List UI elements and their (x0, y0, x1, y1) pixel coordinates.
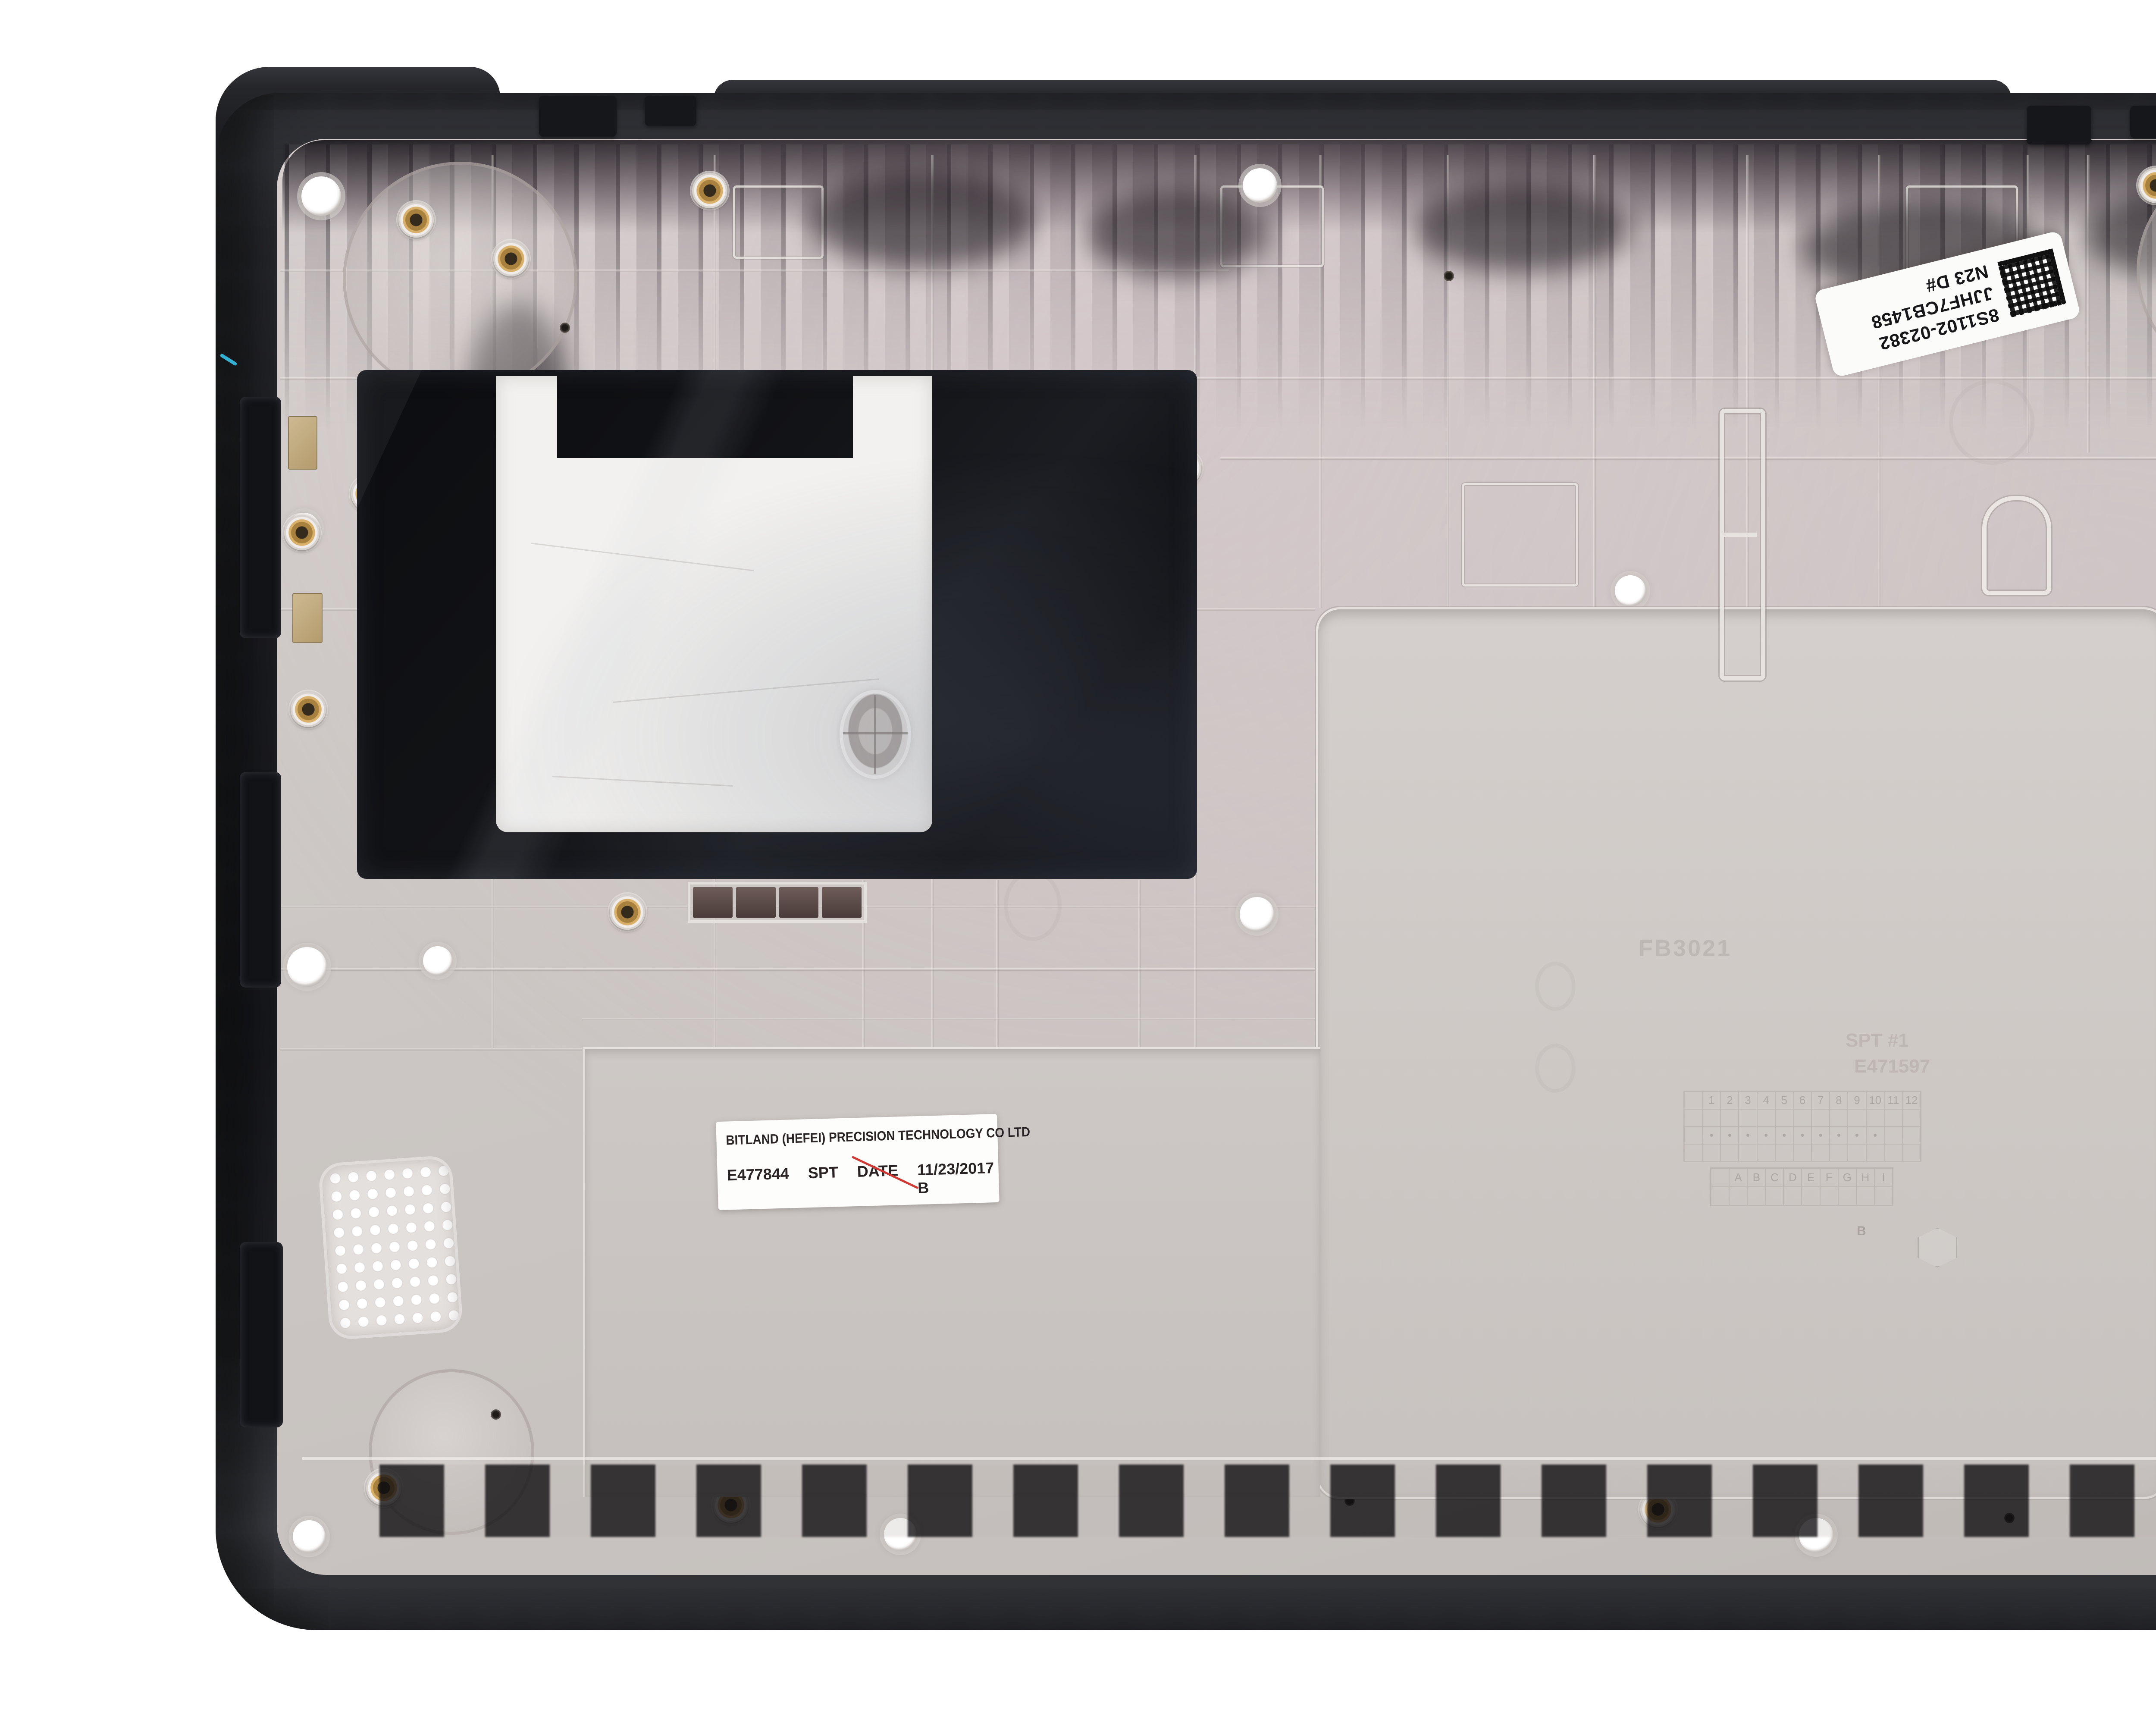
speaker-grille-left (321, 1158, 461, 1337)
mold-grid-cell (1856, 1187, 1874, 1205)
mold-grid-cell (1902, 1126, 1921, 1144)
screw-boss-brass-insert (692, 173, 727, 208)
mold-grid-cell (1720, 1109, 1739, 1127)
mold-grid-cell: A (1729, 1168, 1747, 1187)
alignment-pin-hole (1444, 271, 1454, 281)
mold-grid-cell (1684, 1091, 1702, 1109)
barcode-label-text: 8S1102-02382 JJHF7CB1458 N23 D# (1864, 261, 2001, 354)
mold-grid-cell: 1 (1702, 1091, 1720, 1109)
main-recessed-bay (1316, 607, 2156, 1499)
mold-grid-cell: • (1775, 1126, 1793, 1144)
tall-slot-divider (1720, 533, 1757, 537)
latch-hook (2130, 106, 2156, 138)
mold-grid-cell (1775, 1109, 1793, 1127)
manufacturer-name: BITLAND (HEFEI) PRECISION TECHNOLOGY CO … (726, 1126, 963, 1148)
mold-grid-cell: 7 (1811, 1091, 1830, 1109)
mold-grid-cell (1711, 1187, 1729, 1205)
rib-horizontal (280, 1048, 582, 1051)
soft-shadow (811, 172, 1035, 267)
hinge-dome-boss (343, 162, 577, 396)
side-port-cutout-left (240, 1242, 283, 1427)
mold-grid-cell: F (1820, 1168, 1838, 1187)
mold-grid-cell: 8 (1830, 1091, 1848, 1109)
mold-grid-cell (1757, 1109, 1775, 1127)
screw-boss-brass-insert (493, 241, 529, 276)
screw-hole (1243, 168, 1277, 203)
mold-grid-cell: • (1739, 1126, 1757, 1144)
embossed-text: SPT #1 (1846, 1030, 1909, 1051)
soft-shadow (1087, 190, 1268, 276)
screw-hole (287, 947, 327, 987)
mold-grid-cell: 5 (1775, 1091, 1793, 1109)
product-photo-canvas: FB3021 SPT #1 E471597 123456789101112•••… (0, 0, 2156, 1725)
mold-grid-cell: G (1838, 1168, 1856, 1187)
rib-vertical (2087, 155, 2090, 453)
molded-pocket-frame (1462, 483, 1578, 586)
vent-cell (693, 887, 733, 918)
latch-hook (539, 96, 617, 137)
datamatrix-icon (1997, 248, 2066, 317)
mold-grid-cell: 10 (1866, 1091, 1884, 1109)
side-port-cutout-left (240, 397, 281, 638)
gold-tape-pad (292, 593, 323, 643)
mold-grid-cell (1711, 1168, 1729, 1187)
mold-grid-cell (1884, 1126, 1902, 1144)
rib-horizontal (582, 1018, 1315, 1020)
mold-grid-cell (1739, 1144, 1757, 1162)
latch-hook (2027, 106, 2091, 144)
embossed-ring (1949, 379, 2034, 465)
mold-grid-cell: • (1757, 1126, 1775, 1144)
mold-grid-cell (1702, 1109, 1720, 1127)
label-date-key: DATE (857, 1161, 899, 1199)
mold-grid-cell (1902, 1144, 1921, 1162)
embossed-text: FB3021 (1639, 935, 1732, 962)
keyhole-boss-frame (1982, 496, 2051, 595)
mold-grid-cell (1884, 1144, 1902, 1162)
latch-hook (645, 96, 696, 126)
bottom-rib-pockets (379, 1465, 2156, 1537)
vent-cell (736, 887, 776, 918)
mold-grid-cell: C (1765, 1168, 1783, 1187)
screw-boss-brass-insert (291, 692, 326, 727)
alignment-pin-hole (560, 323, 570, 333)
mold-grid-cell: D (1783, 1168, 1802, 1187)
label-part-number: E477844 (727, 1164, 790, 1202)
mold-grid-cell (1757, 1144, 1775, 1162)
vent-slot-row (688, 882, 867, 923)
manufacturer-label: BITLAND (HEFEI) PRECISION TECHNOLOGY CO … (716, 1114, 999, 1210)
mold-grid-cell (1802, 1187, 1820, 1205)
screw-hole (301, 176, 341, 216)
mold-grid-cell: • (1793, 1126, 1811, 1144)
mold-grid-cell: E (1802, 1168, 1820, 1187)
mold-grid-cell: 2 (1720, 1091, 1739, 1109)
mold-grid-cell (1866, 1109, 1884, 1127)
mold-grid-cell (1811, 1144, 1830, 1162)
vent-cell (822, 887, 862, 918)
screw-boss-brass-insert (284, 515, 320, 550)
mold-grid-cell (1793, 1109, 1811, 1127)
mold-number-grid: 123456789101112•••••••••• (1683, 1091, 1921, 1162)
mold-grid-cell: • (1848, 1126, 1866, 1144)
mold-grid-cell: 12 (1902, 1091, 1921, 1109)
mold-grid-cell: B (1747, 1168, 1765, 1187)
mold-grid-cell (1811, 1109, 1830, 1127)
mold-grid-cell (1902, 1109, 1921, 1127)
soft-shadow (1414, 185, 1630, 272)
label-date-value: 11/23/2017 B (917, 1159, 994, 1197)
side-port-cutout-left (240, 772, 281, 988)
mold-grid-cell: H (1856, 1168, 1874, 1187)
mold-grid-cell: 9 (1848, 1091, 1866, 1109)
mold-letter-grid: ABCDEFGHI (1710, 1167, 1893, 1206)
mold-grid-cell (1848, 1109, 1866, 1127)
screw-hole (293, 1520, 326, 1553)
embossed-oval-stamp (1535, 962, 1576, 1011)
embossed-text: E471597 (1854, 1056, 1930, 1077)
mold-grid-cell (1720, 1144, 1739, 1162)
mold-grid-cell (1729, 1187, 1747, 1205)
bottom-rib-sill (302, 1457, 2156, 1460)
embossed-ring (1004, 870, 1062, 941)
manufacturer-label-row: E477844 SPT DATE 11/23/2017 B (727, 1159, 990, 1202)
mold-grid-cell (1702, 1144, 1720, 1162)
mold-grid-cell: I (1874, 1168, 1893, 1187)
lower-flat-bay (583, 1047, 1320, 1497)
gold-tape-pad (288, 416, 317, 470)
vent-cell (779, 887, 819, 918)
mold-grid-cell: • (1702, 1126, 1720, 1144)
mold-wheel-letter: B (1857, 1224, 1866, 1239)
embossed-oval-stamp (1535, 1044, 1576, 1093)
alignment-pin-hole (491, 1409, 501, 1420)
mold-grid-cell: • (1830, 1126, 1848, 1144)
mold-grid-cell (1747, 1187, 1765, 1205)
mold-grid-cell (1820, 1187, 1838, 1205)
screw-hole (423, 946, 452, 975)
mold-grid-cell (1874, 1187, 1893, 1205)
mold-grid-cell (1684, 1109, 1702, 1127)
mold-grid-cell (1884, 1109, 1902, 1127)
mold-grid-cell (1830, 1144, 1848, 1162)
mold-grid-cell (1739, 1109, 1757, 1127)
mold-grid-cell: 4 (1757, 1091, 1775, 1109)
screw-boss-brass-insert (610, 894, 645, 930)
mold-grid-cell: • (1720, 1126, 1739, 1144)
mold-grid-cell: 11 (1884, 1091, 1902, 1109)
mold-grid-cell: 3 (1739, 1091, 1757, 1109)
mold-grid-cell (1775, 1144, 1793, 1162)
mold-grid-cell (1684, 1126, 1702, 1144)
screw-hole (1615, 575, 1646, 606)
mold-grid-cell (1684, 1144, 1702, 1162)
mold-grid-cell: • (1811, 1126, 1830, 1144)
mold-grid-cell (1838, 1187, 1856, 1205)
screw-boss-brass-insert (398, 202, 434, 238)
mylar-gloss (357, 370, 1197, 879)
mold-grid-cell: • (1866, 1126, 1884, 1144)
screw-hole (1240, 897, 1274, 931)
molded-pocket-frame (733, 185, 824, 259)
mold-grid-cell (1783, 1187, 1802, 1205)
mold-grid-cell (1848, 1144, 1866, 1162)
label-station: SPT (808, 1163, 839, 1200)
tall-slot-frame (1720, 409, 1765, 681)
mold-grid-cell (1765, 1187, 1783, 1205)
mold-grid-cell (1866, 1144, 1884, 1162)
mold-grid-cell (1793, 1144, 1811, 1162)
mold-grid-cell (1830, 1109, 1848, 1127)
mold-grid-cell: 6 (1793, 1091, 1811, 1109)
